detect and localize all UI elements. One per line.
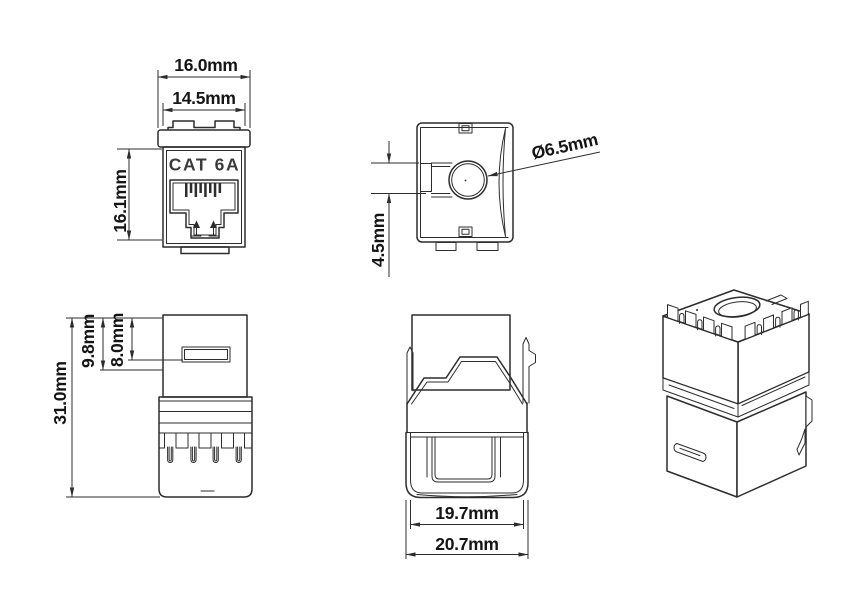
rear-view: 19.7mm 20.7mm xyxy=(406,315,536,559)
front-latch xyxy=(168,121,240,130)
side-slot-inner xyxy=(185,350,228,360)
idc-pins xyxy=(168,447,242,463)
rear-dimensions: 19.7mm 20.7mm xyxy=(406,500,528,559)
rj45-contact-pins xyxy=(185,183,221,197)
rear-cap-outer xyxy=(406,433,528,498)
dim-rear-width-outer: 20.7mm xyxy=(435,534,498,554)
side-cap-block xyxy=(163,315,247,397)
rj45-opening-inner xyxy=(173,183,235,235)
top-view: 4.5mm Ø6.5mm xyxy=(368,123,600,277)
rear-cavity xyxy=(432,437,495,482)
isometric-view xyxy=(663,290,812,497)
dim-side-slot-depth: 8.0mm xyxy=(107,313,127,367)
top-feet xyxy=(436,243,498,251)
rear-roof xyxy=(407,357,527,404)
dim-rear-width-inner: 19.7mm xyxy=(435,503,498,523)
dim-front-height: 16.1mm xyxy=(110,169,130,232)
top-side-curve xyxy=(499,129,506,237)
rj45-opening-outer xyxy=(170,180,238,238)
dim-side-cap-height: 9.8mm xyxy=(78,314,98,368)
top-dimensions: 4.5mm Ø6.5mm xyxy=(368,129,600,277)
front-cap-band xyxy=(158,130,250,147)
top-hole-outer xyxy=(449,161,487,199)
keystone-jack-drawing: CAT 6A 16.0mm 14 xyxy=(0,0,864,612)
product-label: CAT 6A xyxy=(169,155,241,175)
rj45-lower-contacts xyxy=(192,221,218,237)
front-view: CAT 6A 16.0mm 14 xyxy=(110,55,250,254)
iso-latch-barb xyxy=(806,396,812,427)
dim-side-total-height: 31.0mm xyxy=(50,361,70,424)
side-view: 31.0mm 9.8mm 8.0mm xyxy=(50,313,252,497)
dim-front-width-inner: 14.5mm xyxy=(172,88,235,108)
dim-top-hole-diameter: Ø6.5mm xyxy=(530,129,600,163)
dim-front-width-outer: 16.0mm xyxy=(174,55,237,75)
dim-top-slot-offset: 4.5mm xyxy=(368,213,388,267)
front-bottom-tab xyxy=(181,247,229,254)
idc-teeth xyxy=(159,433,252,448)
technical-drawing-canvas: CAT 6A 16.0mm 14 xyxy=(0,0,864,612)
top-hole-inner xyxy=(452,164,485,197)
top-left-tab xyxy=(421,164,432,192)
rear-right-arm xyxy=(523,338,536,404)
